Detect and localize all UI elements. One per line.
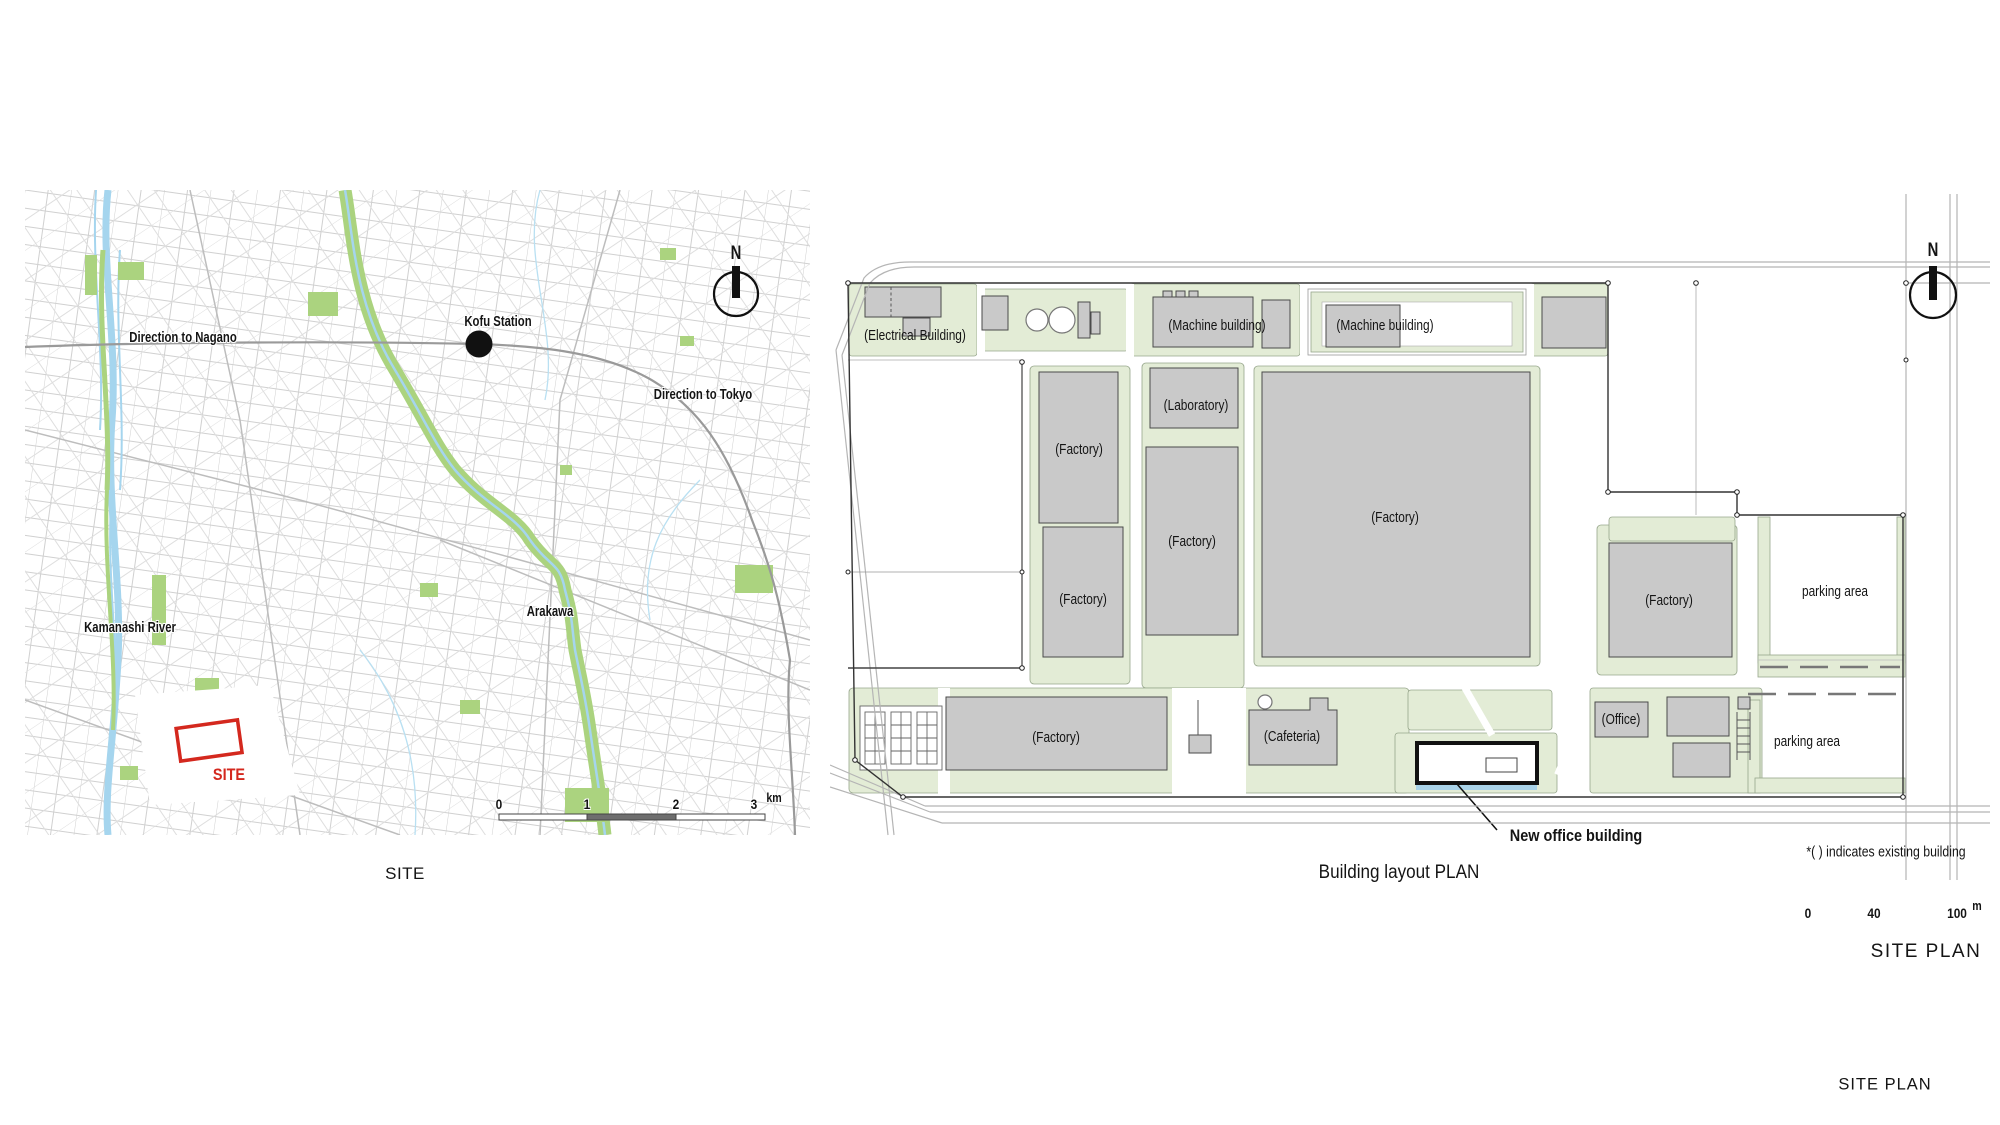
map-scale-tick-3: 3	[751, 796, 758, 812]
direction-nagano-label: Direction to Nagano	[129, 330, 236, 346]
factory-mid-label: (Factory)	[1168, 534, 1216, 550]
plan-scale-unit: m	[1972, 899, 1981, 913]
machine-building-2-label: (Machine building)	[1336, 318, 1433, 334]
factory-w-label: (Factory)	[1059, 592, 1107, 608]
map-scale-unit: km	[766, 791, 781, 805]
new-office-building-label: New office building	[1510, 826, 1642, 846]
cafeteria-label: (Cafeteria)	[1264, 729, 1320, 745]
building-layout-plan	[830, 190, 1990, 890]
map-caption: SITE	[385, 864, 425, 884]
existing-building-note: *( ) indicates existing building	[1806, 844, 1965, 861]
direction-tokyo-label: Direction to Tokyo	[654, 387, 752, 403]
kofu-station-dot	[466, 331, 493, 358]
parking-lower-label: parking area	[1774, 734, 1840, 750]
plan-caption: Building layout PLAN	[1319, 862, 1480, 884]
sheet-corner-caption: SITE PLAN	[1838, 1076, 1931, 1095]
arakawa-label: Arakawa	[527, 604, 574, 620]
map-scale-tick-2: 2	[673, 796, 680, 812]
plan-scale-tick-0: 0	[1805, 905, 1812, 921]
cooling-towers	[860, 706, 942, 770]
site-marker-label: SITE	[213, 765, 245, 785]
machine-building-1-label: (Machine building)	[1168, 318, 1265, 334]
factory-nw-label: (Factory)	[1055, 442, 1103, 458]
electrical-building-label: (Electrical Building)	[864, 328, 966, 344]
map-north-label: N	[731, 243, 742, 265]
factory-s-label: (Factory)	[1032, 730, 1080, 746]
factory-main-label: (Factory)	[1371, 510, 1419, 526]
kofu-station-label: Kofu Station	[464, 314, 531, 330]
plan-scale-caption: SITE PLAN	[1871, 941, 1982, 963]
map-scale-tick-1: 1	[584, 796, 591, 812]
factory-e-label: (Factory)	[1645, 593, 1693, 609]
site-plan-sheet: Direction to Nagano Kofu Station Directi…	[0, 0, 2000, 1125]
kamanashi-river-label: Kamanashi River	[84, 620, 176, 636]
plan-north-label: N	[1928, 240, 1939, 262]
location-map	[25, 190, 810, 835]
plan-scale-tick-40: 40	[1867, 905, 1880, 921]
laboratory-label: (Laboratory)	[1164, 398, 1229, 414]
map-scale-tick-0: 0	[496, 796, 503, 812]
parking-upper-label: parking area	[1802, 584, 1868, 600]
map-scale-bar	[499, 814, 765, 820]
plan-scale-tick-100: 100	[1947, 905, 1967, 921]
office-label: (Office)	[1602, 712, 1641, 728]
